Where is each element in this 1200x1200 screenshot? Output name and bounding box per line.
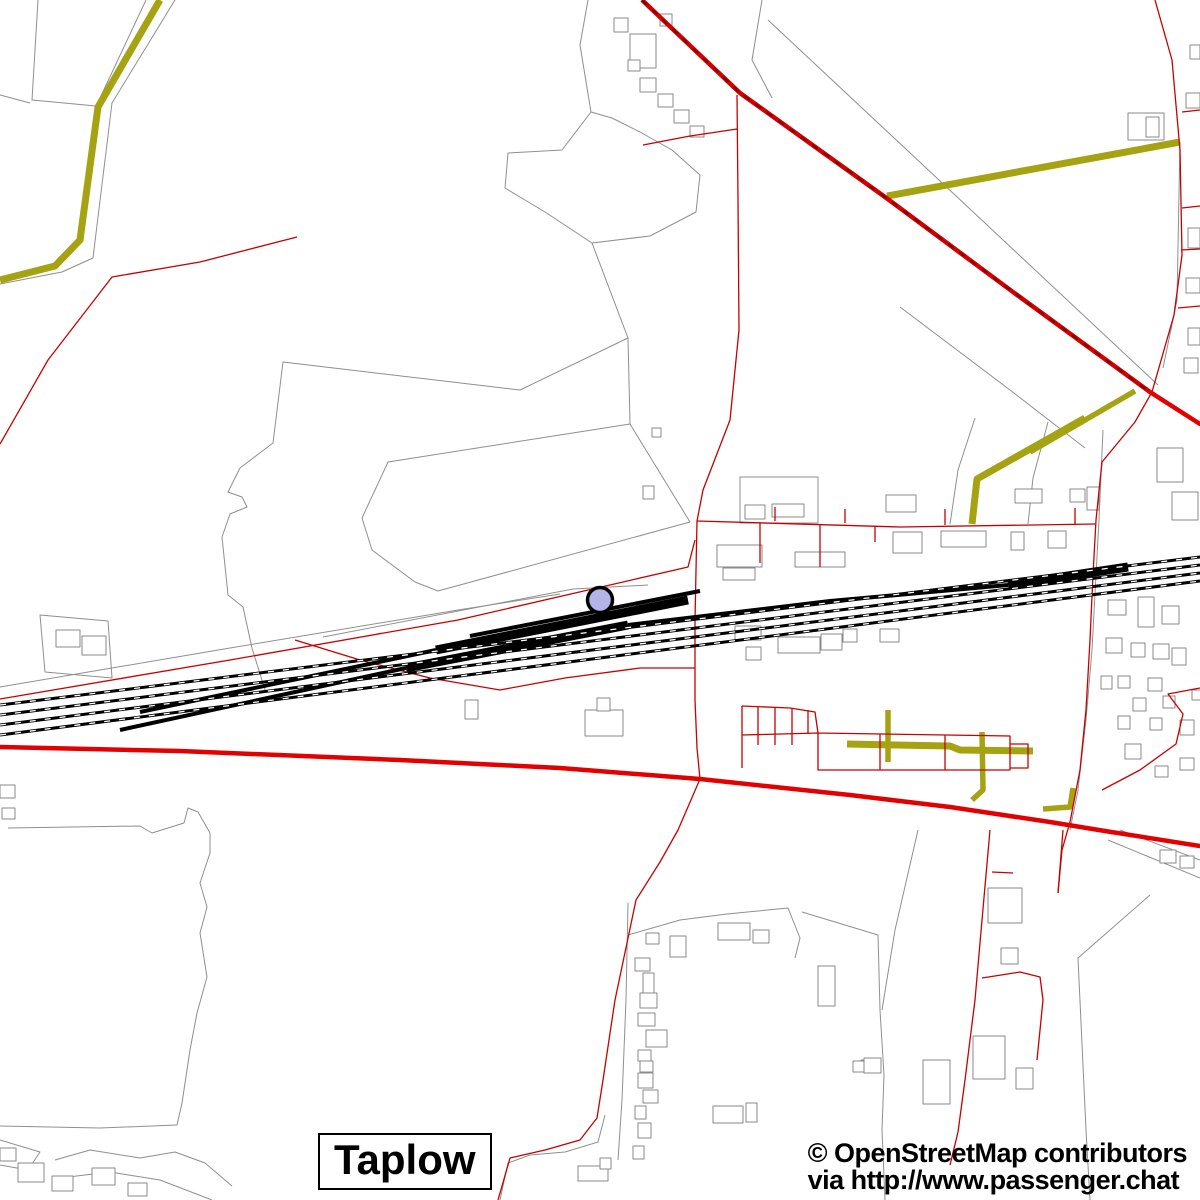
station-marker[interactable] xyxy=(588,588,613,613)
map-canvas[interactable]: Taplow © OpenStreetMap contributors via … xyxy=(0,0,1200,1200)
map-vector-layers xyxy=(0,0,1200,1200)
place-label-taplow: Taplow xyxy=(318,1133,492,1190)
attribution-line-url: via http://www.passenger.chat xyxy=(808,1167,1187,1194)
layer-railway-platforms-heavy xyxy=(406,567,1128,668)
attribution-line-copyright: © OpenStreetMap contributors xyxy=(808,1140,1187,1167)
map-attribution: © OpenStreetMap contributors via http://… xyxy=(808,1140,1187,1194)
